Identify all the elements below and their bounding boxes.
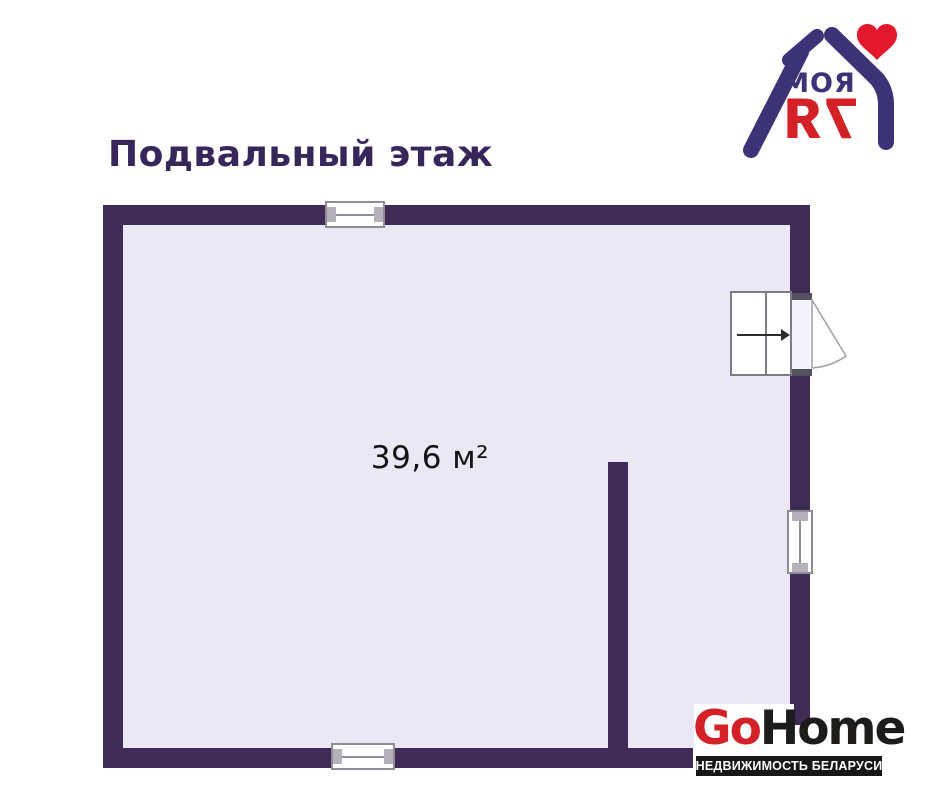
window-cap [374,207,383,222]
window-cap [384,749,393,764]
door-swing-icon [810,298,854,378]
gohome-wordmark-home: Home [760,701,904,756]
door-direction-arrowhead-icon [781,329,790,341]
gohome-tagline-banner: НЕДВИЖИМОСТЬ БЕЛАРУСИ [696,756,882,776]
door-leaf-symbol [730,291,792,376]
window-cap [792,563,808,572]
moya7ya-logo: МОЯ 7Я [735,12,920,162]
moya7ya-word-bottom: 7Я [773,88,871,151]
gohome-tagline: НЕДВИЖИМОСТЬ БЕЛАРУСИ [696,759,883,773]
wall-top [103,205,810,225]
window-cap [333,749,342,764]
gohome-wordmark-go: Go [693,701,760,756]
room-interior [123,225,790,748]
window-cap [792,512,808,521]
window-bottom [331,743,395,770]
wall-left [103,205,123,768]
partition-wall [608,462,628,768]
wall-right-upper [790,205,810,295]
window-cap [327,207,336,222]
gohome-wordmark: GoHome [693,704,913,753]
window-top [325,201,385,228]
gohome-logo: GoHome НЕДВИЖИМОСТЬ БЕЛАРУСИ [693,704,913,784]
door-direction-arrow-icon [737,334,784,336]
floor-plan-page: Подвальный этаж МОЯ 7Я [0,0,927,800]
window-right [787,510,813,574]
room-area-label: 39,6 м² [340,440,520,476]
wall-bottom [103,748,693,768]
door-opening [790,295,810,375]
page-title: Подвальный этаж [108,134,493,175]
